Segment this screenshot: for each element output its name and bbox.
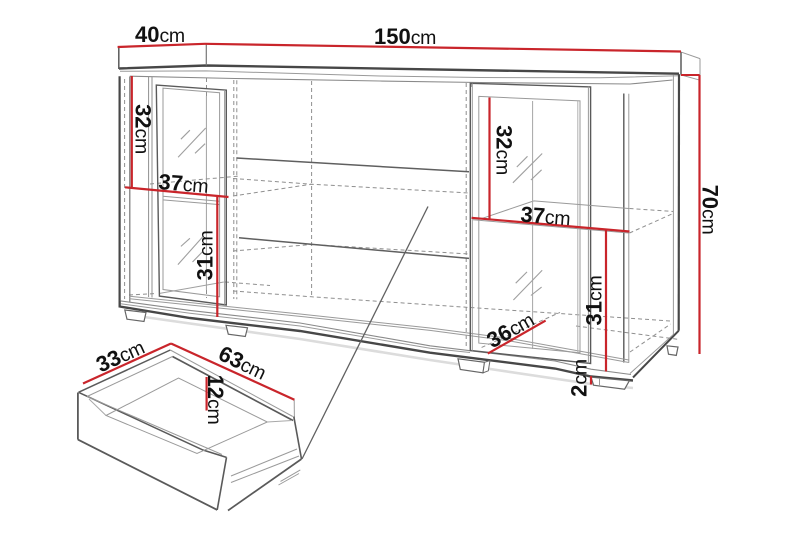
- svg-text:37cm: 37cm: [520, 202, 572, 231]
- svg-text:37cm: 37cm: [158, 169, 210, 198]
- svg-text:150cm: 150cm: [374, 24, 436, 49]
- svg-text:32cm: 32cm: [131, 104, 156, 154]
- svg-text:2cm: 2cm: [567, 359, 592, 397]
- svg-text:40cm: 40cm: [135, 22, 185, 47]
- svg-text:32cm: 32cm: [492, 125, 517, 175]
- svg-text:31cm: 31cm: [193, 231, 218, 281]
- svg-text:70cm: 70cm: [698, 185, 723, 235]
- svg-text:31cm: 31cm: [582, 276, 607, 326]
- svg-text:33cm: 33cm: [92, 334, 148, 377]
- svg-text:12cm: 12cm: [203, 375, 228, 425]
